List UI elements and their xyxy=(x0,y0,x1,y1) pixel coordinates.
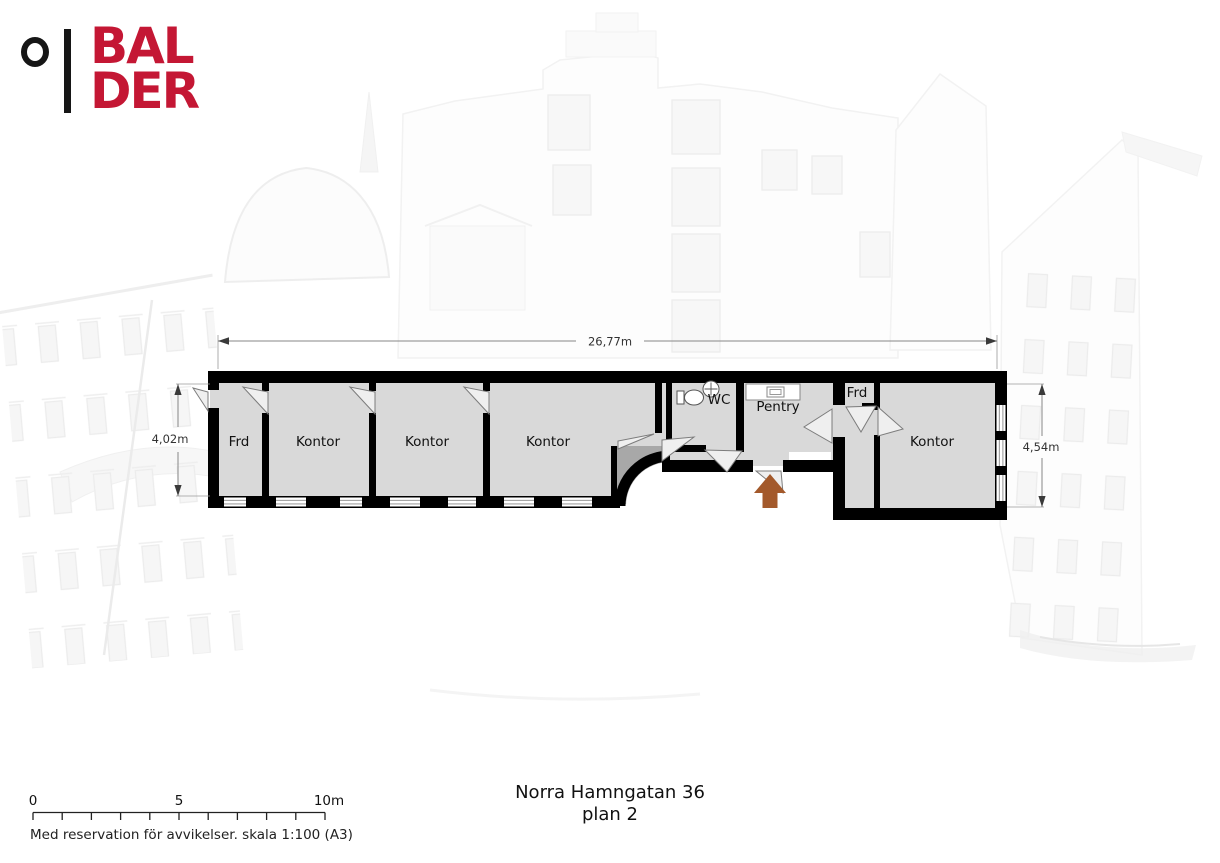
dimension-right-height: 4,54m xyxy=(1023,440,1060,454)
sketch-central-building xyxy=(398,52,898,358)
logo-circle-icon xyxy=(21,37,49,67)
room-label-kontor-1: Kontor xyxy=(296,434,341,450)
toilet-icon xyxy=(677,391,684,404)
room-label-kontor-3: Kontor xyxy=(526,434,571,450)
balder-logo: BAL DER xyxy=(0,0,260,140)
logo-line2: DER xyxy=(90,69,198,114)
address-block: Norra Hamngatan 36 plan 2 xyxy=(0,782,1220,826)
pentry-fixtures xyxy=(746,384,800,400)
entrance-threshold xyxy=(789,452,831,460)
toilet-icon xyxy=(685,390,704,405)
floorplan-page: Frd Kontor Kontor Kontor WC Pentry Frd K… xyxy=(0,0,1220,863)
disclaimer-text: Med reservation för avvikelser. skala 1:… xyxy=(30,827,353,843)
floor-plan: Frd Kontor Kontor Kontor WC Pentry Frd K… xyxy=(193,371,1007,520)
room-label-wc: WC xyxy=(708,392,731,408)
room-label-kontor-4: Kontor xyxy=(910,434,955,450)
room-label-frd-right: Frd xyxy=(847,385,868,401)
address-title: Norra Hamngatan 36 xyxy=(0,782,1220,804)
room-label-pentry: Pentry xyxy=(756,399,799,415)
dimension-left-height: 4,02m xyxy=(152,432,189,446)
room-label-kontor-2: Kontor xyxy=(405,434,450,450)
room-label-frd-left: Frd xyxy=(229,434,250,450)
logo-bar-icon xyxy=(64,29,71,113)
dimension-total-width: 26,77m xyxy=(588,335,632,349)
logo-wordmark: BAL DER xyxy=(90,24,198,114)
windows-east xyxy=(997,405,1006,501)
sketch-right-building xyxy=(890,74,1202,662)
plan-label: plan 2 xyxy=(0,804,1220,826)
kitchen-sink xyxy=(770,390,781,395)
